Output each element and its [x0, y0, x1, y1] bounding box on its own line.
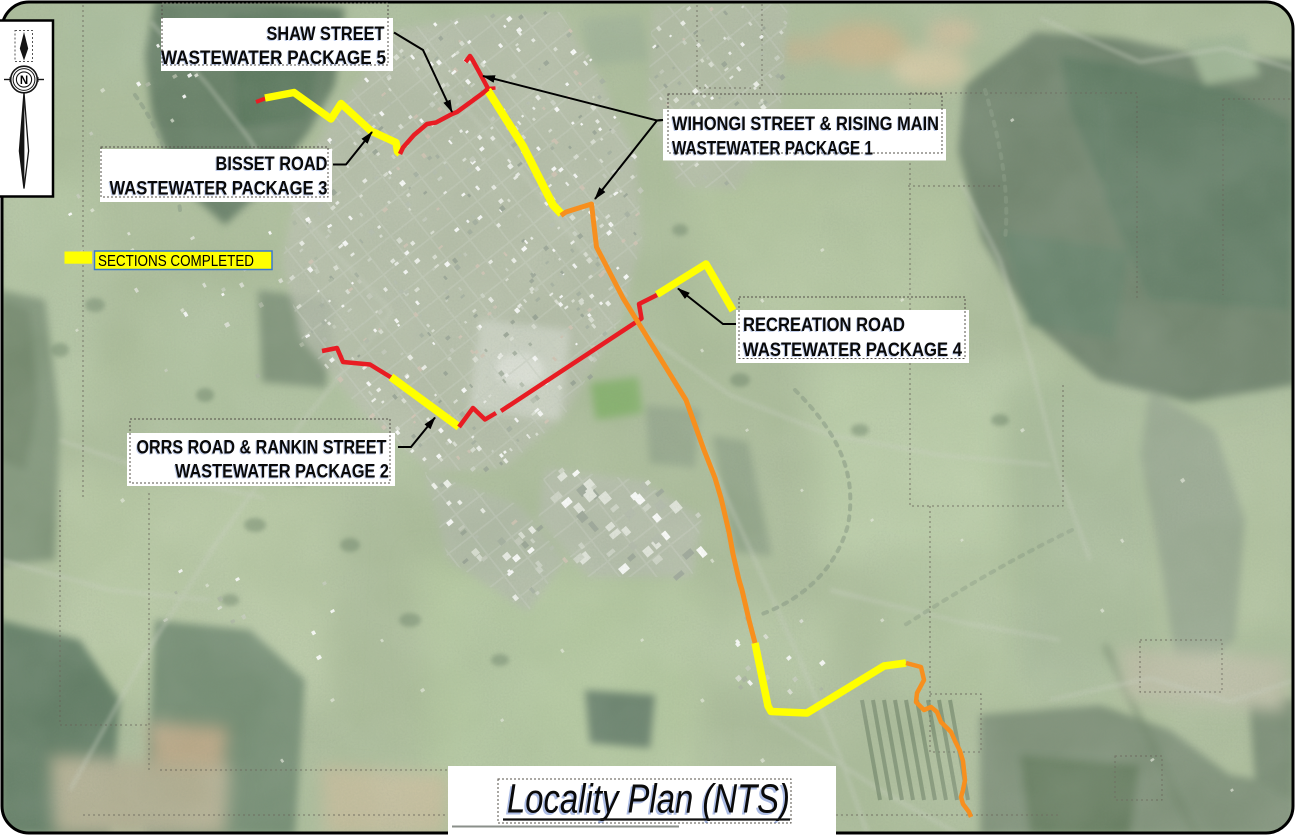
- svg-text:WASTEWATER PACKAGE 1: WASTEWATER PACKAGE 1: [672, 138, 873, 160]
- svg-text:SECTIONS COMPLETED: SECTIONS COMPLETED: [98, 253, 254, 270]
- svg-text:N: N: [20, 75, 28, 87]
- svg-text:ORRS ROAD & RANKIN STREET: ORRS ROAD & RANKIN STREET: [137, 437, 387, 459]
- svg-text:SHAW STREET: SHAW STREET: [267, 23, 385, 45]
- svg-text:WASTEWATER PACKAGE 4: WASTEWATER PACKAGE 4: [743, 339, 962, 361]
- svg-text:RECREATION ROAD: RECREATION ROAD: [743, 314, 905, 336]
- svg-text:WASTEWATER PACKAGE 5: WASTEWATER PACKAGE 5: [161, 47, 386, 69]
- svg-text:BISSET ROAD: BISSET ROAD: [216, 153, 328, 175]
- svg-text:WIHONGI STREET & RISING MAIN: WIHONGI STREET & RISING MAIN: [672, 113, 939, 135]
- svg-text:WASTEWATER PACKAGE 2: WASTEWATER PACKAGE 2: [175, 461, 389, 483]
- svg-text:Locality Plan (NTS): Locality Plan (NTS): [507, 776, 790, 822]
- svg-text:WASTEWATER PACKAGE 3: WASTEWATER PACKAGE 3: [110, 178, 328, 200]
